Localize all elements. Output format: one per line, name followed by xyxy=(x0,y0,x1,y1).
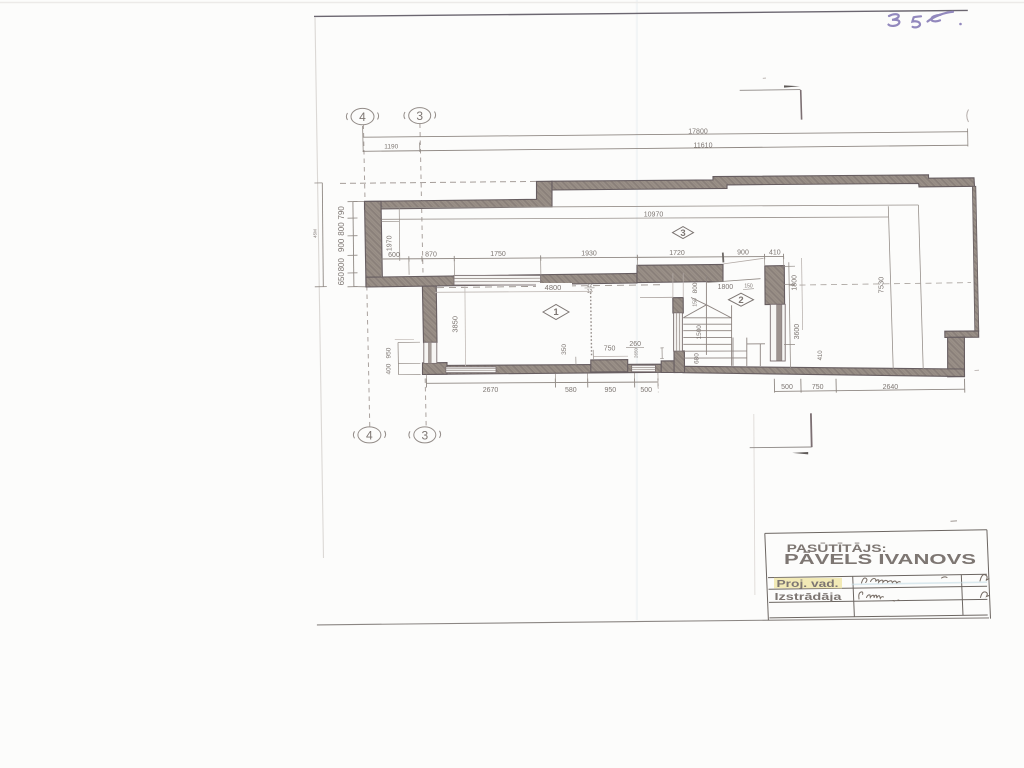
svg-text:800: 800 xyxy=(337,222,346,236)
svg-text:650: 650 xyxy=(337,271,346,285)
svg-text:45M: 45M xyxy=(313,229,318,238)
svg-text:680: 680 xyxy=(694,353,701,364)
svg-text:150: 150 xyxy=(693,298,699,307)
svg-text:150: 150 xyxy=(744,283,753,289)
svg-text:4: 4 xyxy=(359,110,366,124)
svg-text:11610: 11610 xyxy=(694,142,713,149)
svg-text:580: 580 xyxy=(565,387,577,394)
svg-text:1970: 1970 xyxy=(386,235,393,251)
svg-text:3: 3 xyxy=(421,428,428,442)
svg-text:2: 2 xyxy=(738,295,743,306)
svg-text:1800: 1800 xyxy=(718,284,734,291)
svg-text:4: 4 xyxy=(366,428,373,442)
svg-text:3600: 3600 xyxy=(794,324,801,340)
svg-text:410: 410 xyxy=(769,250,781,257)
svg-text:7530: 7530 xyxy=(877,277,886,294)
svg-text:410: 410 xyxy=(818,350,824,361)
svg-text:790: 790 xyxy=(337,206,346,220)
svg-text:500: 500 xyxy=(781,384,793,391)
svg-text:800: 800 xyxy=(337,257,346,271)
svg-text:600: 600 xyxy=(388,252,400,259)
svg-text:260: 260 xyxy=(629,341,641,348)
svg-text:3: 3 xyxy=(680,228,685,239)
svg-text:1720: 1720 xyxy=(669,250,685,257)
svg-text:3: 3 xyxy=(416,109,423,123)
svg-text:2640: 2640 xyxy=(883,384,899,391)
svg-text:1500: 1500 xyxy=(696,325,703,340)
svg-text:750: 750 xyxy=(812,384,824,391)
svg-text:2670: 2670 xyxy=(483,387,499,394)
svg-text:Proj. vad.: Proj. vad. xyxy=(777,579,839,590)
svg-text:800: 800 xyxy=(692,282,699,293)
svg-text:1: 1 xyxy=(553,307,559,318)
svg-text:Izstrādāja: Izstrādāja xyxy=(775,592,843,603)
svg-text:950: 950 xyxy=(604,387,616,394)
svg-text:1800: 1800 xyxy=(791,275,798,291)
svg-text:1930: 1930 xyxy=(581,250,597,257)
svg-text:1750: 1750 xyxy=(490,251,506,258)
svg-text:500: 500 xyxy=(640,387,652,394)
svg-text:750: 750 xyxy=(604,346,616,353)
svg-text:350: 350 xyxy=(561,344,568,355)
svg-text:950: 950 xyxy=(385,347,392,358)
svg-text:2650: 2650 xyxy=(634,347,639,358)
svg-text:10970: 10970 xyxy=(644,212,664,219)
svg-text:4800: 4800 xyxy=(545,283,562,292)
svg-text:3850: 3850 xyxy=(451,316,460,333)
svg-text:12: 12 xyxy=(587,289,593,295)
svg-text:1190: 1190 xyxy=(384,144,398,151)
svg-text:870: 870 xyxy=(425,251,437,258)
svg-text:900: 900 xyxy=(737,250,749,257)
svg-text:PĀVELS IVANOVS: PĀVELS IVANOVS xyxy=(784,551,976,568)
svg-text:17800: 17800 xyxy=(688,129,708,136)
svg-text:900: 900 xyxy=(337,238,346,252)
svg-text:400: 400 xyxy=(386,363,393,374)
